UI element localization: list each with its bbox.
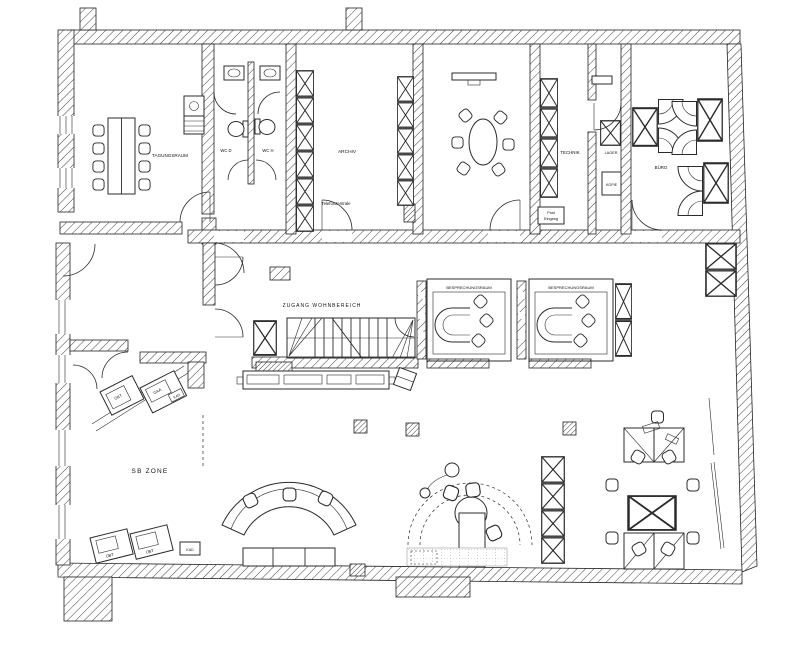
door-swings — [63, 192, 662, 337]
oval-table — [469, 119, 497, 165]
chair — [442, 484, 460, 502]
pillar — [354, 420, 367, 433]
label-kopie: KOPIE — [606, 183, 618, 187]
kitchenette — [184, 96, 204, 134]
label-sb-zone: SB ZONE — [132, 468, 169, 475]
room-archive: ARCHIV Telefonzentrale — [321, 149, 356, 206]
fan-chair — [678, 191, 703, 216]
sb-machine-1: GKT — [100, 376, 144, 416]
reception-counter — [222, 482, 356, 535]
fan-chair — [672, 130, 697, 155]
chair — [503, 139, 514, 150]
u-desk — [537, 308, 572, 342]
waiting-bench — [243, 548, 335, 566]
label-consult-1: BESPRECHUNGSRAUM — [446, 285, 491, 290]
wall-stub-bottom-left — [64, 577, 112, 621]
fan-chair — [678, 167, 703, 192]
pillar — [350, 564, 365, 576]
room-meeting: TAGUNGSRAUM — [93, 96, 204, 194]
label-stairs-access: ZUGANG WOHNBEREICH — [283, 303, 362, 309]
chair — [606, 479, 618, 491]
label-lager: LAGER — [605, 151, 618, 155]
wall-stub-top-left — [80, 8, 96, 30]
chair — [687, 479, 699, 491]
room-technik: TECHNIK Post Eingang — [538, 79, 580, 224]
cabinet — [616, 321, 632, 356]
pillar — [406, 423, 419, 436]
floor-plan-drawing: TAGUNGSRAUM WC D WC H ARCHIV Telefonzent… — [0, 0, 785, 666]
consult-room-1: BESPRECHUNGSRAUM — [417, 279, 511, 361]
label-consult-2: BESPRECHUNGSRAUM — [548, 285, 593, 290]
fan-chair — [672, 102, 697, 127]
lamp-head — [445, 463, 459, 477]
chair — [573, 333, 589, 349]
chair — [139, 143, 150, 154]
label-post-2: Eingang — [544, 217, 558, 221]
chair — [93, 179, 104, 190]
chair — [687, 532, 699, 544]
u-desk — [435, 308, 470, 342]
floor-plan-canvas: TAGUNGSRAUM WC D WC H ARCHIV Telefonzent… — [0, 0, 785, 666]
sideboard — [237, 371, 395, 389]
stool — [283, 488, 296, 501]
sb-machine-3: ÜBT — [90, 529, 133, 563]
room-roundtable — [452, 73, 514, 177]
chair — [652, 411, 664, 423]
chair — [452, 137, 463, 148]
elevator — [254, 321, 277, 355]
wall-stub-top-mid — [346, 8, 362, 30]
right-workstations — [606, 398, 724, 569]
podium — [393, 367, 416, 390]
consult-station — [407, 463, 532, 567]
label-technik: TECHNIK — [560, 150, 579, 155]
wall-right-slanted — [727, 44, 757, 572]
chair — [93, 161, 104, 172]
staircase: ZUGANG WOHNBEREICH — [254, 303, 415, 358]
label-device-m6: KAD — [186, 548, 194, 552]
consult-room-2: BESPRECHUNGSRAUM — [517, 279, 631, 361]
chair — [458, 108, 474, 124]
label-archive: ARCHIV — [338, 149, 357, 155]
wc-block: WC D WC H — [214, 66, 280, 180]
label-wc-right: WC H — [262, 148, 273, 153]
chair — [491, 162, 507, 178]
chair — [493, 110, 509, 126]
desk — [698, 99, 722, 140]
pillar — [563, 422, 576, 435]
toilet — [259, 120, 275, 135]
chair — [93, 125, 104, 136]
carpet-mat — [407, 548, 507, 566]
chair — [581, 313, 597, 329]
toilet — [228, 122, 244, 137]
chair — [485, 524, 503, 542]
table — [629, 496, 676, 530]
chair — [471, 333, 487, 349]
chair — [479, 313, 495, 329]
sb-machine-2: GAA KAD — [140, 371, 187, 413]
label-office: BÜRO — [655, 165, 668, 170]
chair — [139, 125, 150, 136]
chair — [456, 161, 472, 177]
sink — [260, 66, 280, 80]
lamp-base — [420, 488, 430, 498]
sb-zone: GKT GAA KAD SB ZONE ÜBT ÜBT KAD — [73, 352, 203, 563]
label-post-1: Post — [547, 211, 556, 215]
chair — [465, 482, 480, 497]
chair — [93, 143, 104, 154]
sink — [224, 66, 244, 80]
label-meeting-room: TAGUNGSRAUM — [152, 153, 188, 158]
post-box — [538, 207, 564, 224]
hall-rack — [542, 457, 565, 563]
chair — [606, 532, 618, 544]
right-wall-shelf — [706, 244, 736, 296]
label-wc-left: WC D — [220, 148, 231, 153]
chair — [139, 179, 150, 190]
room-office-right: BÜRO — [633, 99, 728, 215]
desk — [704, 163, 728, 202]
cabinet — [616, 284, 632, 319]
chair — [575, 294, 591, 310]
sb-machine-4: ÜBT — [130, 525, 173, 559]
chair — [473, 294, 489, 310]
wall-stub-bottom-mid — [396, 577, 470, 597]
chair — [139, 161, 150, 172]
desk — [633, 108, 657, 146]
